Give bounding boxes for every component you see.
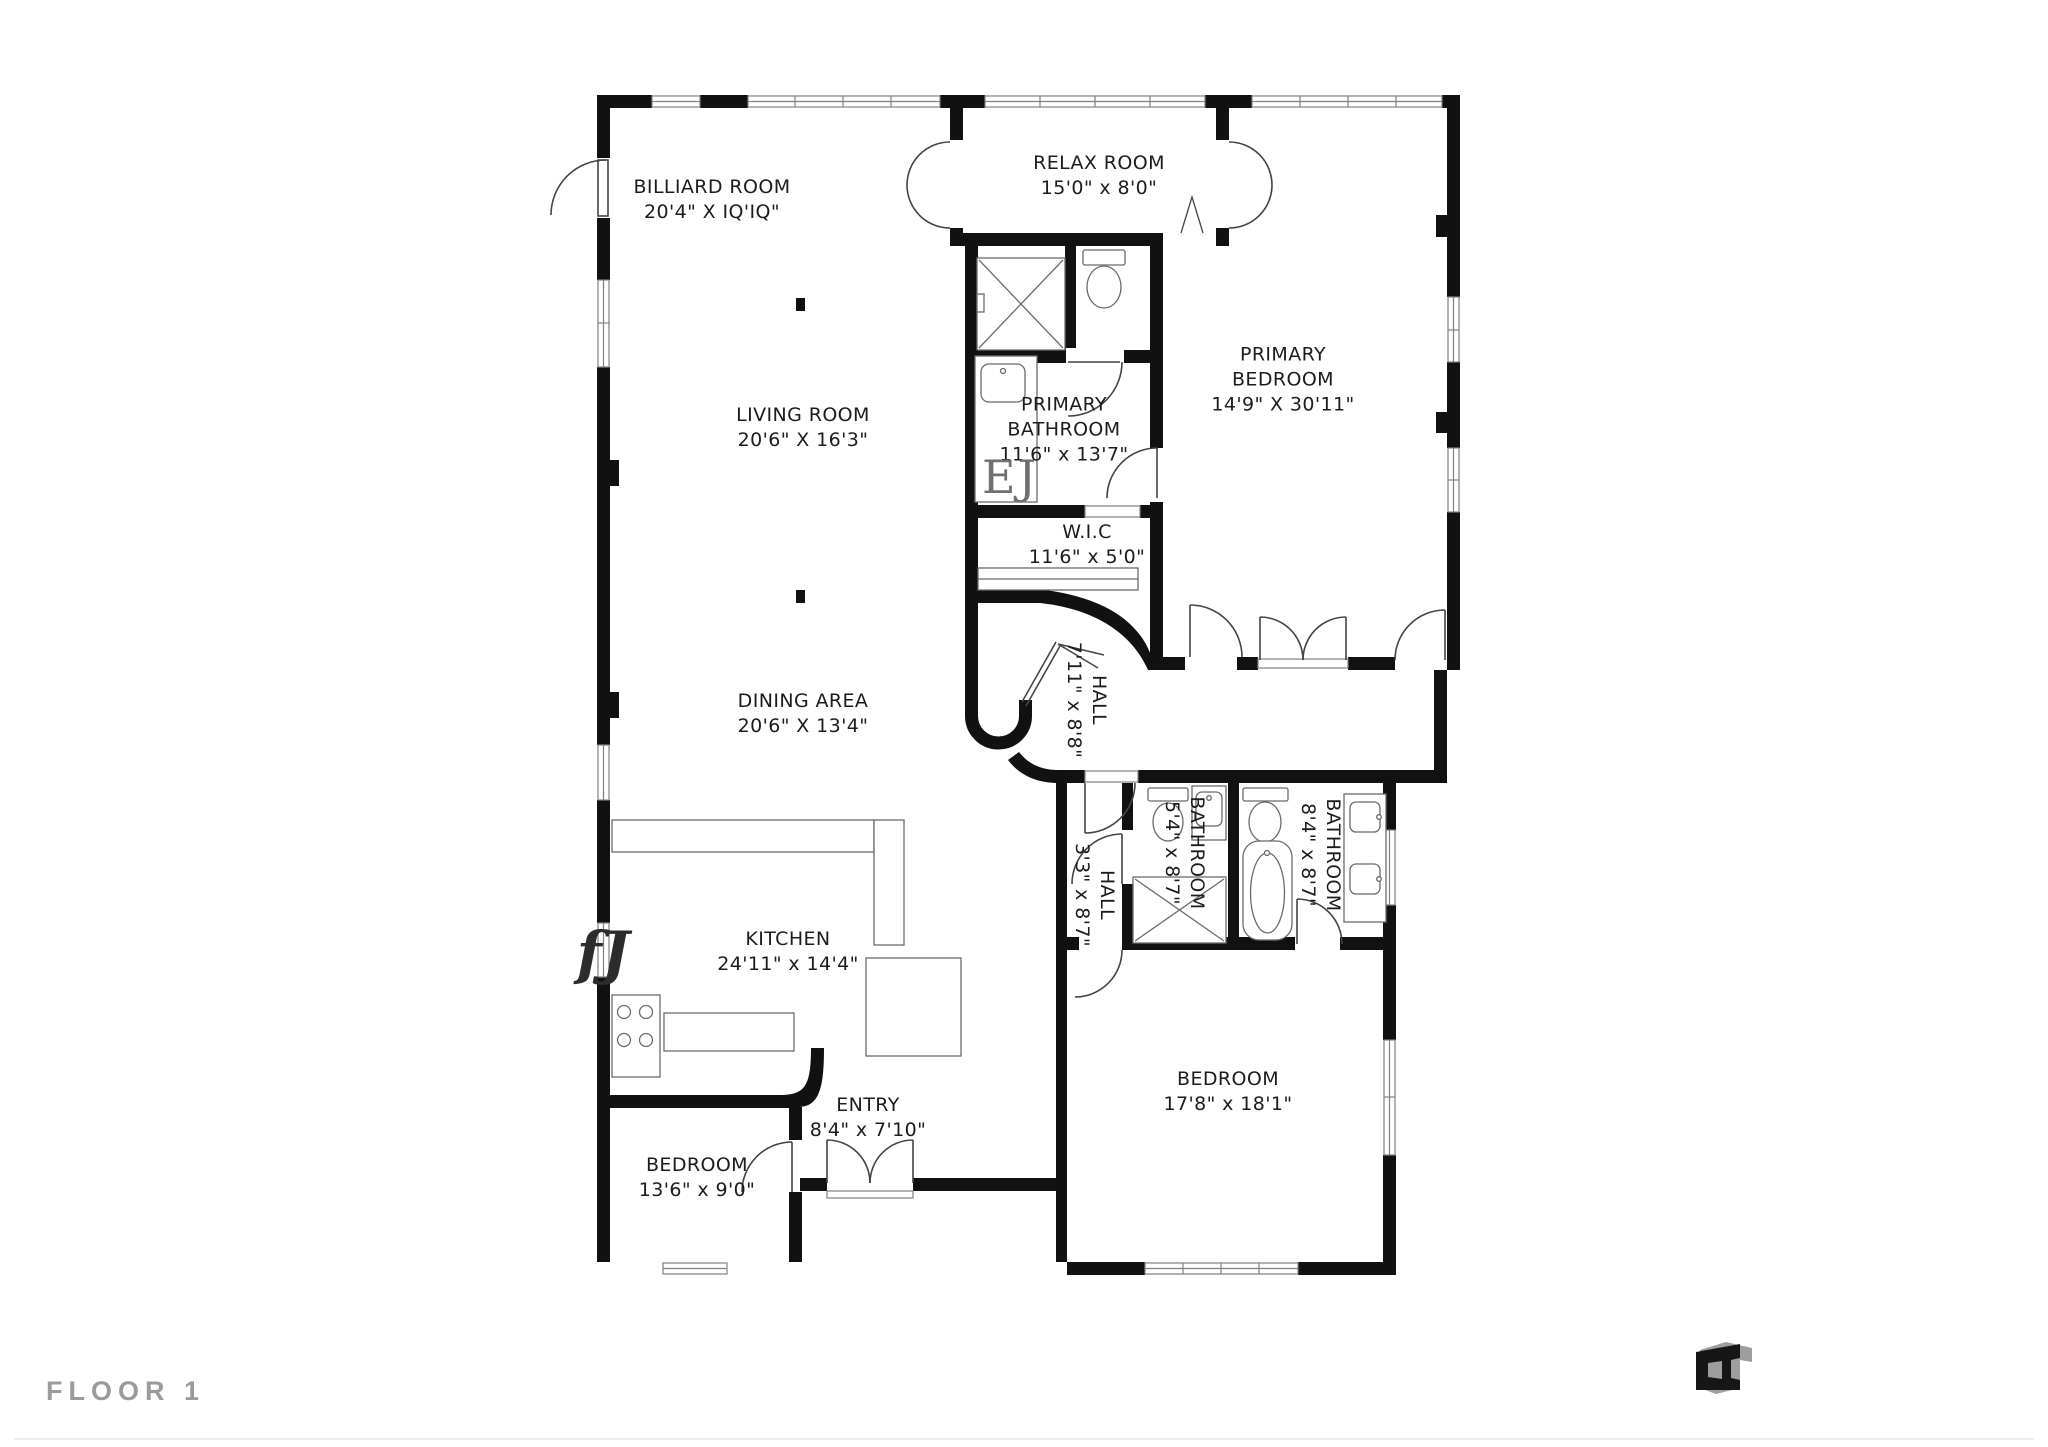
floor-plan-drawing <box>0 0 2048 1447</box>
floor-title: FLOOR 1 <box>46 1376 205 1407</box>
page-divider-line <box>14 1438 2034 1440</box>
floor-plan-page: BILLIARD ROOM20'4" X IQ'IQ"RELAX ROOM15'… <box>0 0 2048 1447</box>
brand-logo <box>1696 1342 1752 1394</box>
